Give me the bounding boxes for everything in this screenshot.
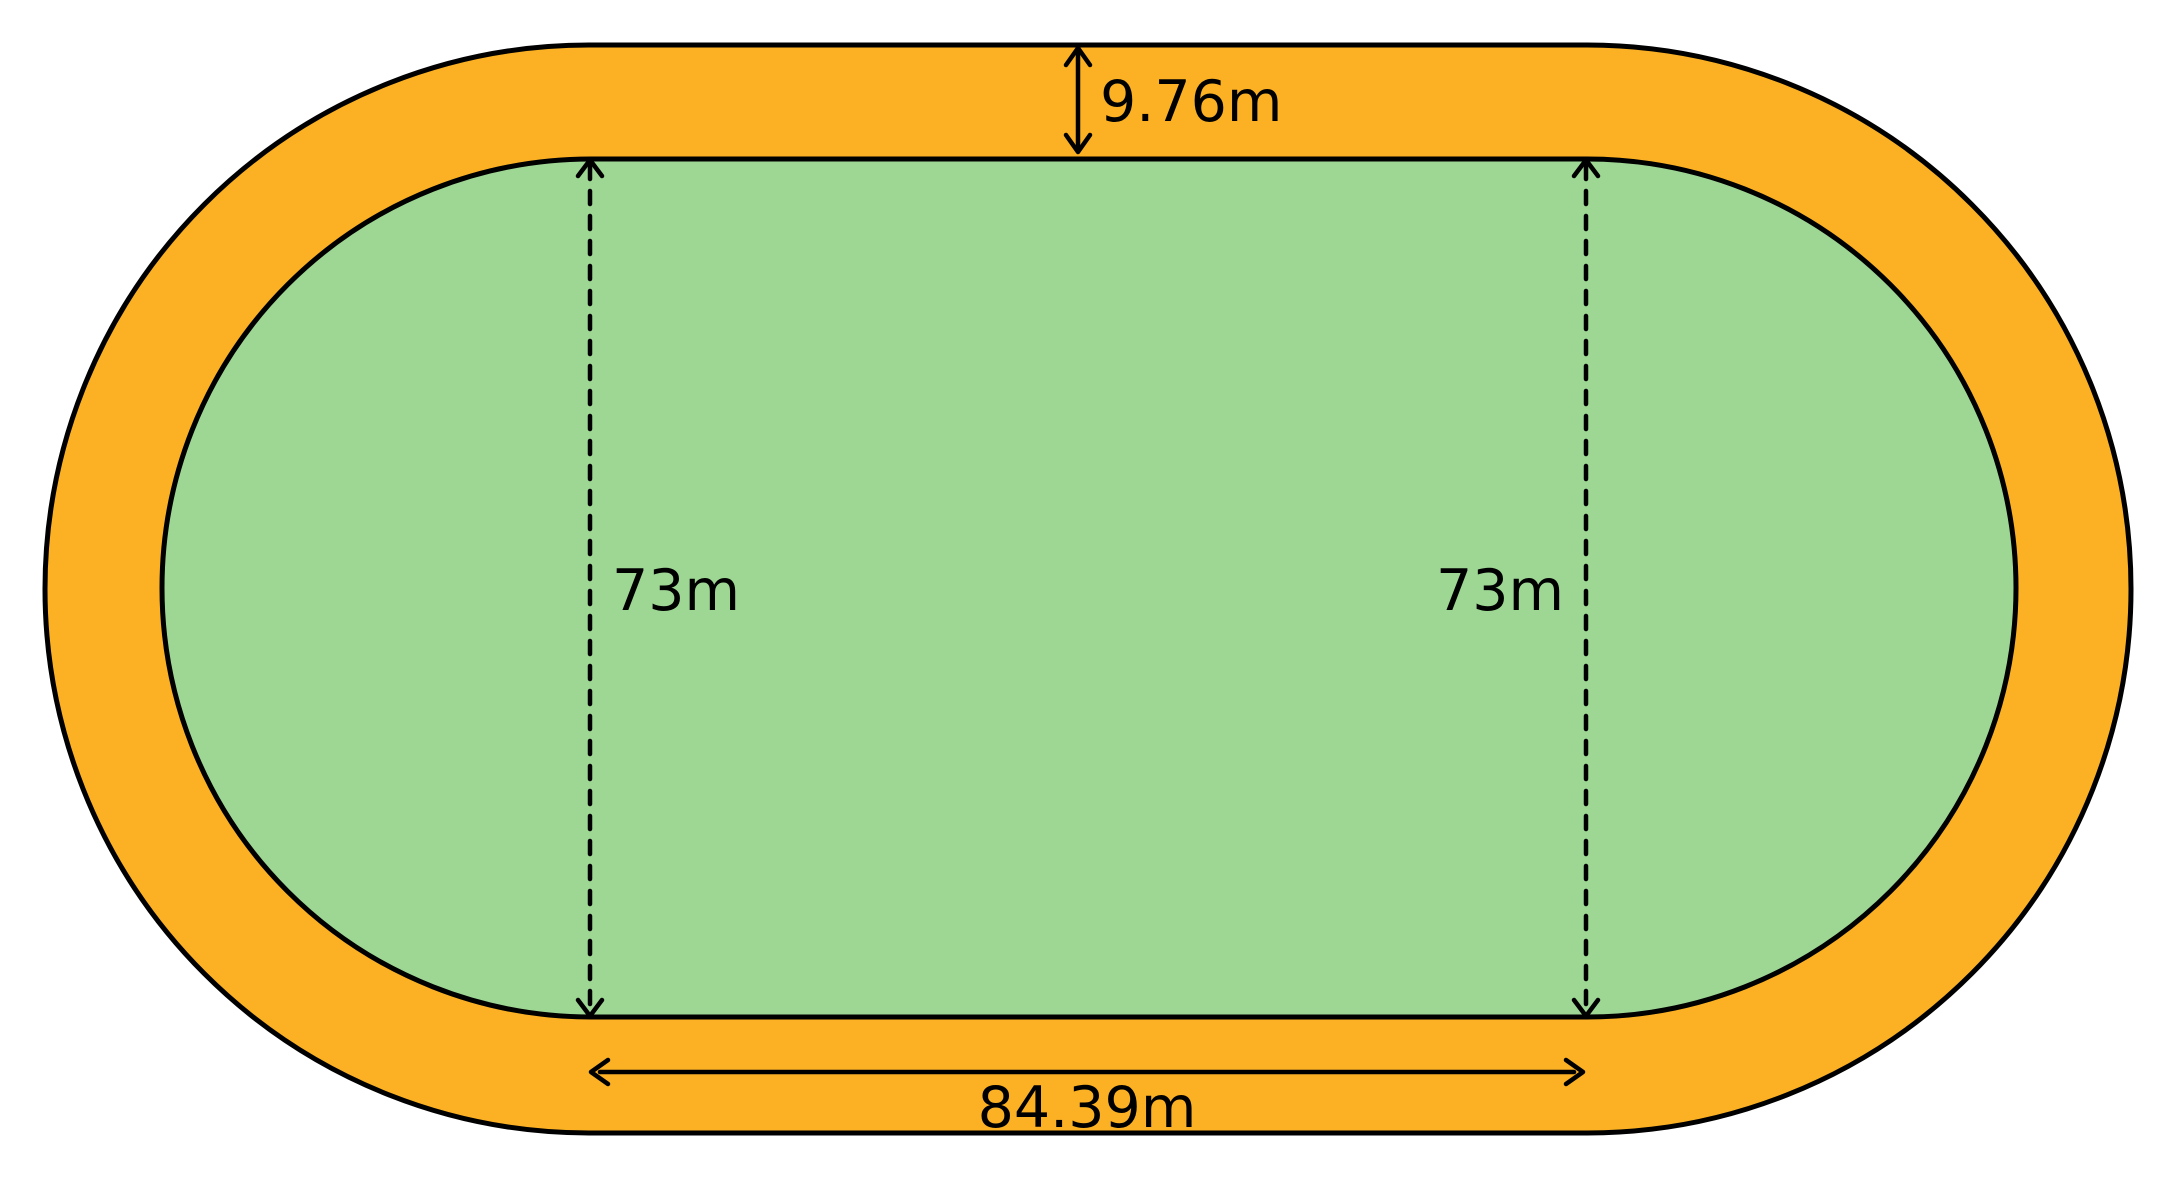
infield [162,159,2016,1017]
track-diagram-svg: 9.76m 73m 73m 84.39m [0,0,2176,1182]
infield-width-label-right: 73m [1436,558,1564,624]
infield-width-label-left: 73m [612,558,740,624]
diagram-shapes [45,45,2131,1133]
straight-length-label: 84.39m [978,1075,1197,1141]
track-width-label: 9.76m [1100,69,1282,135]
track-diagram: 9.76m 73m 73m 84.39m [0,0,2176,1182]
